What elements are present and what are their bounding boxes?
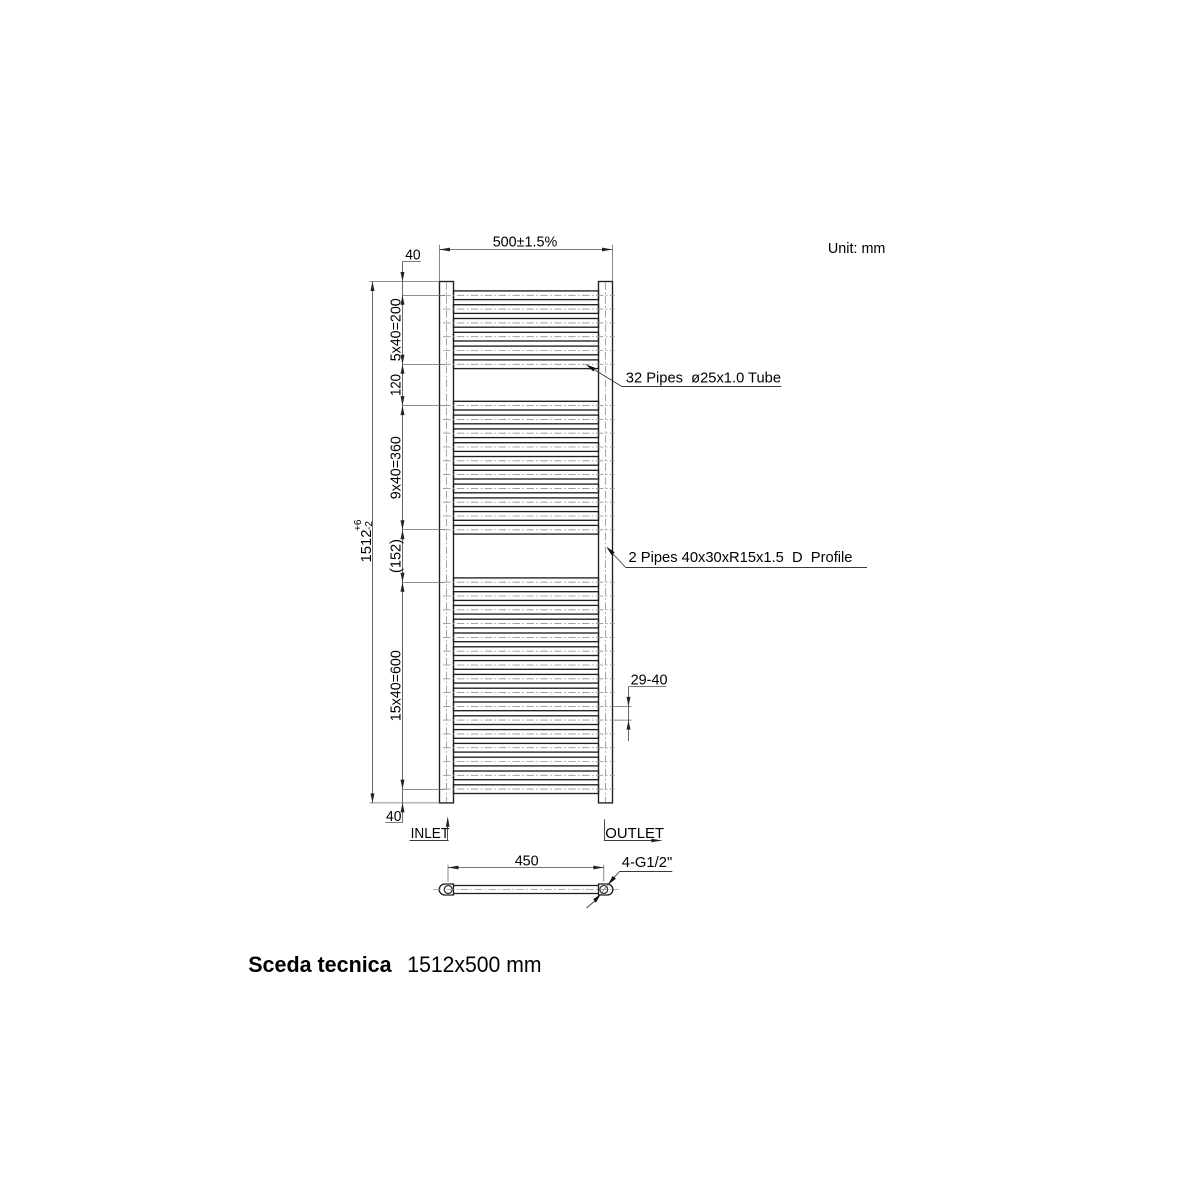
svg-text:-2: -2 xyxy=(364,521,375,530)
svg-text:9x40=360: 9x40=360 xyxy=(388,436,404,499)
svg-text:INLET: INLET xyxy=(411,826,450,842)
svg-text:+6: +6 xyxy=(353,519,364,531)
svg-text:1512: 1512 xyxy=(358,530,375,563)
svg-text:450: 450 xyxy=(515,853,539,869)
svg-text:29-40: 29-40 xyxy=(631,673,668,689)
svg-text:Sceda tecnica: Sceda tecnica xyxy=(248,952,392,977)
svg-text:1512x500 mm: 1512x500 mm xyxy=(407,952,541,977)
svg-text:2 Pipes 40x30xR15x1.5 D Prof: 2 Pipes 40x30xR15x1.5 D Profile xyxy=(629,549,853,566)
svg-text:5x40=200: 5x40=200 xyxy=(388,298,404,361)
svg-text:40: 40 xyxy=(386,809,401,825)
svg-text:120: 120 xyxy=(388,374,404,396)
svg-text:500±1.5%: 500±1.5% xyxy=(493,233,558,250)
svg-text:Unit: mm: Unit: mm xyxy=(828,240,886,257)
svg-text:4-G1/2": 4-G1/2" xyxy=(622,855,672,871)
svg-text:40: 40 xyxy=(405,248,420,264)
svg-text:32 Pipes ø25x1.0 Tube: 32 Pipes ø25x1.0 Tube xyxy=(626,369,781,386)
svg-text:15x40=600: 15x40=600 xyxy=(388,650,404,721)
svg-text:(152): (152) xyxy=(388,539,404,573)
